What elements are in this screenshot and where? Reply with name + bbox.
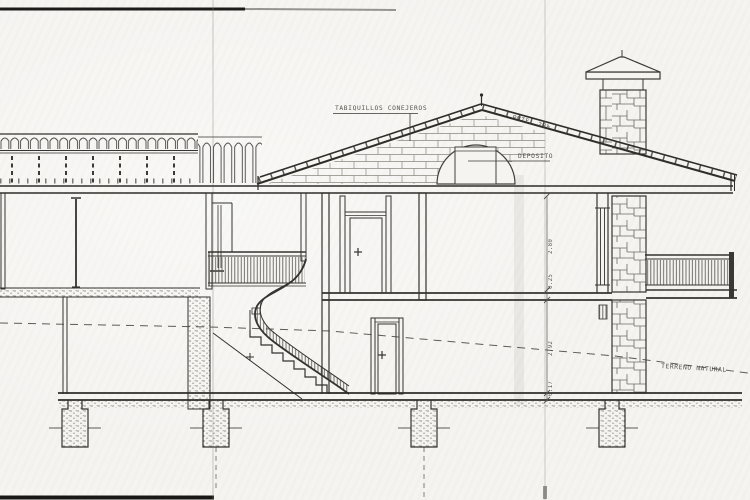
flat-roof-left xyxy=(0,134,262,184)
dim-upper-room-height: 2.80 xyxy=(548,239,554,254)
gable-brick-wall xyxy=(266,114,545,184)
scanned-section-drawing: TABIQUILLOS CONEJEROS PNTE. 28% DEPOSITO… xyxy=(0,0,750,500)
label-tabiquillos: TABIQUILLOS CONEJEROS xyxy=(335,105,427,112)
chimney xyxy=(586,50,660,154)
upper-window-right xyxy=(595,193,610,293)
slender-column xyxy=(71,198,81,287)
upper-door-middle xyxy=(340,196,391,293)
ceiling-slab xyxy=(0,186,733,193)
label-terreno-natural: TERRENO NATURAL xyxy=(661,363,727,374)
balcony-railing xyxy=(645,252,737,298)
dim-slab-thickness: 0.25 xyxy=(548,274,554,289)
ground-slab xyxy=(58,393,742,408)
section-drawing-canvas: TABIQUILLOS CONEJEROS PNTE. 28% DEPOSITO… xyxy=(0,0,750,500)
lower-door xyxy=(371,318,403,394)
stone-pier xyxy=(599,196,646,393)
water-tank xyxy=(455,147,496,184)
stair-stringer xyxy=(213,333,302,399)
dim-floor-thickness: 0.17 xyxy=(548,381,554,396)
label-deposito: DEPOSITO xyxy=(518,153,553,160)
foundation-footings xyxy=(49,400,638,500)
dim-lower-room-height: 2.92 xyxy=(548,341,554,356)
